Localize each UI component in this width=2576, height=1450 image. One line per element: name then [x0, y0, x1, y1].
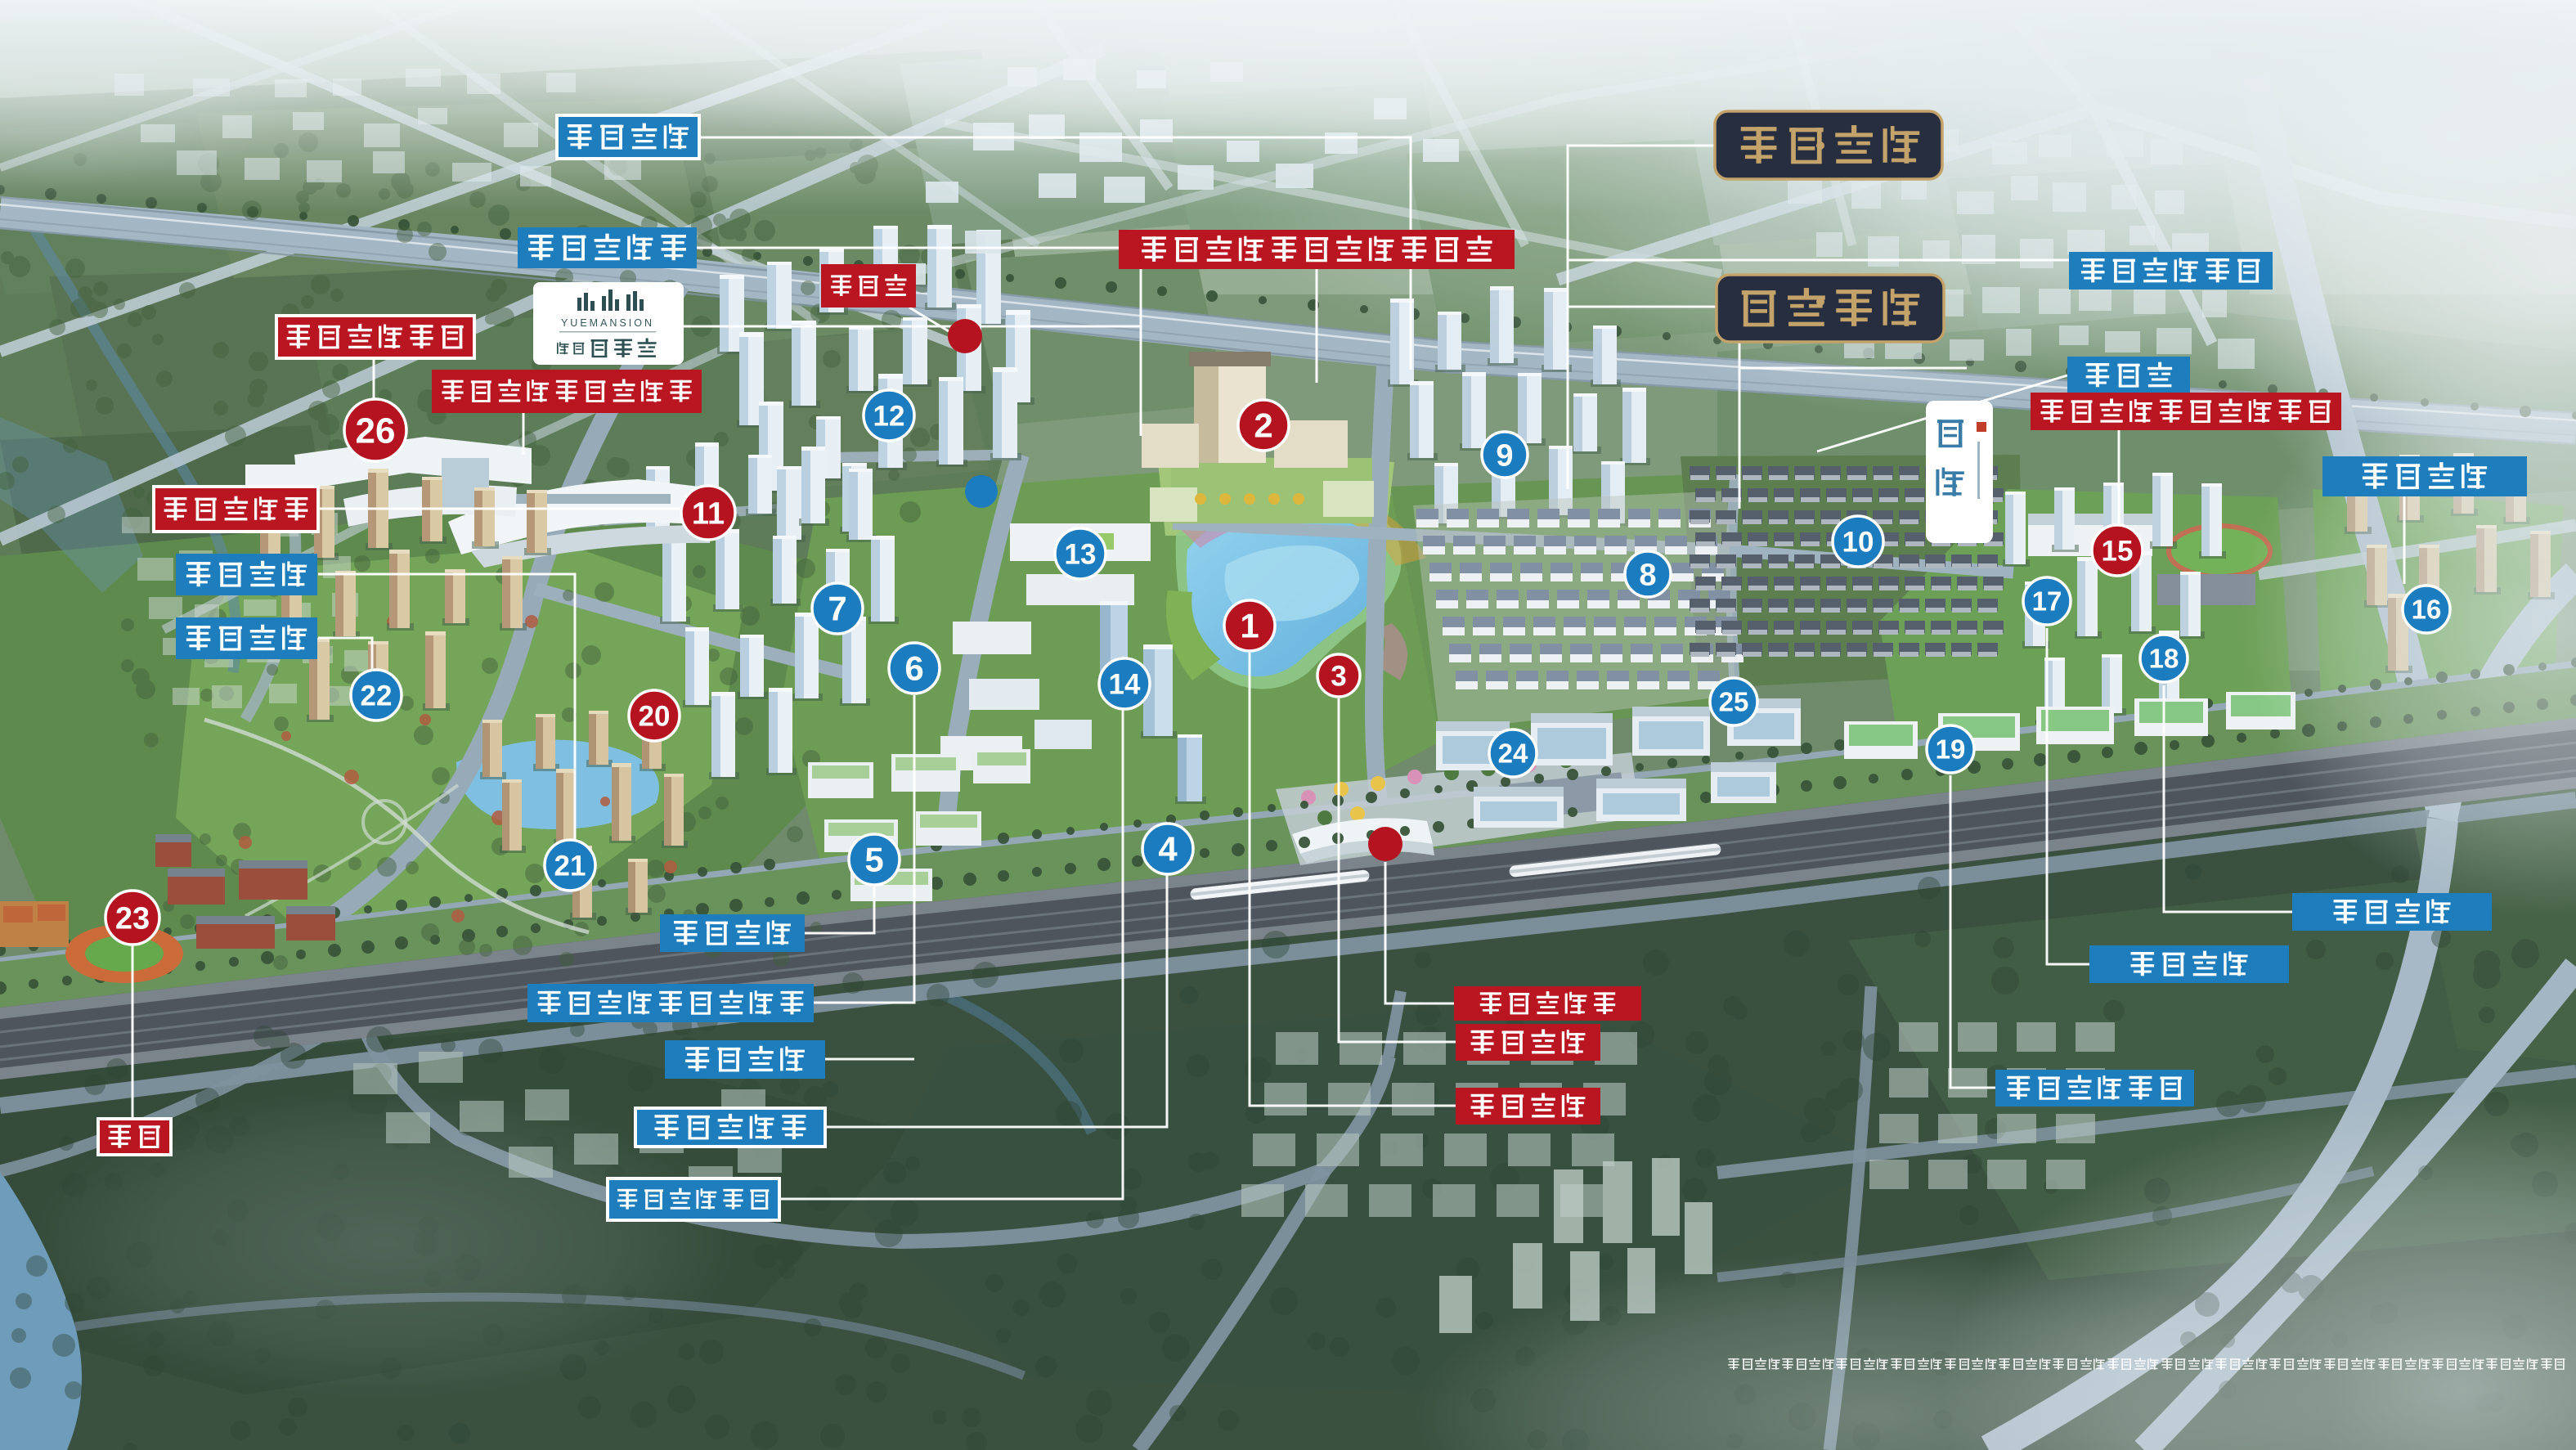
- svg-text:19: 19: [1936, 734, 1966, 765]
- svg-text:1: 1: [1240, 607, 1259, 645]
- svg-text:8: 8: [1639, 558, 1656, 592]
- svg-text:16: 16: [2412, 595, 2442, 625]
- svg-text:9: 9: [1496, 438, 1513, 473]
- svg-text:3: 3: [1331, 660, 1346, 692]
- svg-text:5: 5: [864, 841, 883, 879]
- svg-text:4: 4: [1158, 830, 1178, 869]
- svg-text:22: 22: [361, 680, 393, 712]
- svg-text:25: 25: [1719, 687, 1749, 717]
- svg-text:15: 15: [2102, 535, 2134, 567]
- svg-text:11: 11: [692, 496, 725, 531]
- svg-text:17: 17: [2032, 586, 2062, 617]
- svg-text:7: 7: [828, 590, 846, 628]
- svg-text:26: 26: [356, 411, 396, 451]
- svg-text:13: 13: [1065, 538, 1097, 570]
- svg-text:14: 14: [1109, 668, 1141, 700]
- svg-text:24: 24: [1498, 738, 1528, 769]
- svg-text:12: 12: [873, 400, 905, 432]
- svg-text:21: 21: [554, 850, 586, 882]
- svg-text:18: 18: [2149, 644, 2179, 674]
- svg-text:YUEMANSION: YUEMANSION: [561, 317, 654, 329]
- svg-text:10: 10: [1842, 526, 1874, 558]
- svg-text:2: 2: [1254, 406, 1272, 445]
- svg-text:23: 23: [115, 901, 150, 936]
- svg-text:6: 6: [904, 649, 923, 688]
- svg-text:20: 20: [639, 700, 671, 732]
